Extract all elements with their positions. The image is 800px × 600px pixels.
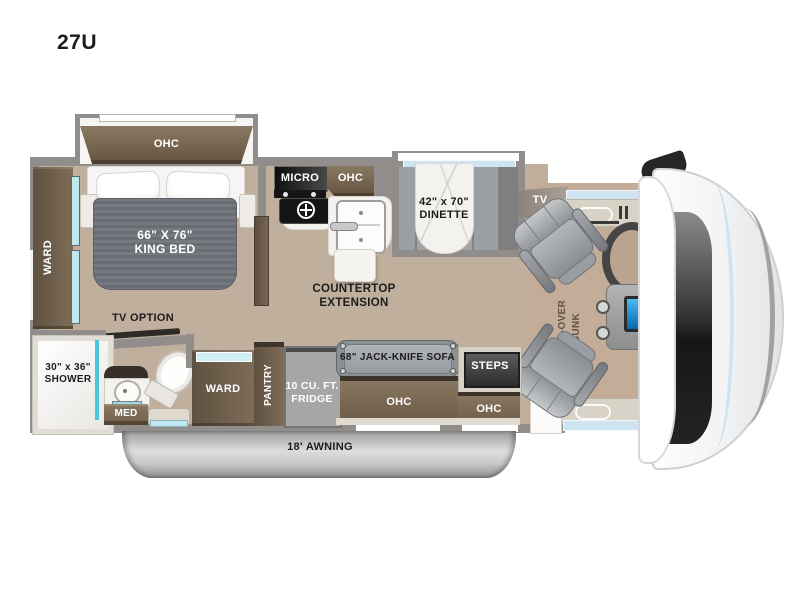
bedroom-ohc-label: OHC: [80, 138, 253, 151]
sofa-ohc-label: OHC: [340, 396, 458, 409]
range-knob: [311, 192, 316, 197]
console-knob: [596, 326, 610, 340]
fridge-label: 10 CU. FT. FRIDGE: [284, 380, 340, 405]
pocket-door: [254, 216, 269, 306]
ward-mirror-door2: [71, 250, 80, 324]
awning: [122, 431, 516, 478]
ward-mirror-top: [196, 352, 252, 362]
door-latch: [619, 206, 622, 219]
ward-left-label: WARD: [36, 212, 62, 302]
shower-label: 30" x 36" SHOWER: [35, 362, 101, 386]
steps-label: STEPS: [464, 360, 516, 373]
sofa-bolt: [340, 368, 346, 374]
kitchen-faucet: [330, 222, 358, 231]
sofa-bolt: [340, 343, 346, 349]
kitchen-ohc-label: OHC: [327, 172, 374, 185]
range-knob-panel: [274, 190, 326, 198]
range-knob: [283, 192, 288, 197]
sofa-bolt: [450, 368, 456, 374]
floorplan-27u: 18' AWNING OHC WARD 66" X 76" KING BED T…: [0, 0, 800, 600]
ward-bottom-label: WARD: [192, 383, 254, 396]
awning-label: 18' AWNING: [250, 441, 390, 454]
kitchen-sink: [336, 200, 386, 254]
wall-divider: [258, 164, 266, 218]
sink-drain: [359, 211, 363, 215]
burner-cross: [300, 209, 312, 211]
bedroom-slide-window: [99, 114, 236, 122]
console-knob: [596, 300, 610, 314]
sofa-bolt: [450, 343, 456, 349]
sofa-label: 68" JACK-KNIFE SOFA: [340, 352, 454, 364]
cab-roof: [638, 176, 676, 464]
king-bed-label: 66" X 76" KING BED: [103, 228, 227, 257]
ward-mirror-door: [71, 176, 80, 246]
steps-ohc-label: OHC: [458, 403, 520, 416]
med-label: MED: [104, 408, 148, 420]
bath-step-edge: [150, 420, 188, 427]
sink-drain: [123, 389, 127, 393]
dinette-label: 42" x 70" DINETTE: [396, 196, 492, 222]
countertop-extension-flap: [334, 249, 376, 282]
countertop-extension-label: COUNTERTOP EXTENSION: [294, 283, 414, 311]
pantry-label: PANTRY: [256, 348, 282, 422]
tv-option-label: TV OPTION: [88, 312, 198, 325]
hood-crease: [744, 208, 775, 426]
burner-icon: [297, 201, 315, 219]
door-latch: [625, 206, 628, 219]
threshold-strip: [336, 418, 520, 425]
micro-label: MICRO: [274, 172, 326, 185]
sink-drain: [359, 238, 363, 242]
page-title: 27U: [57, 30, 97, 55]
